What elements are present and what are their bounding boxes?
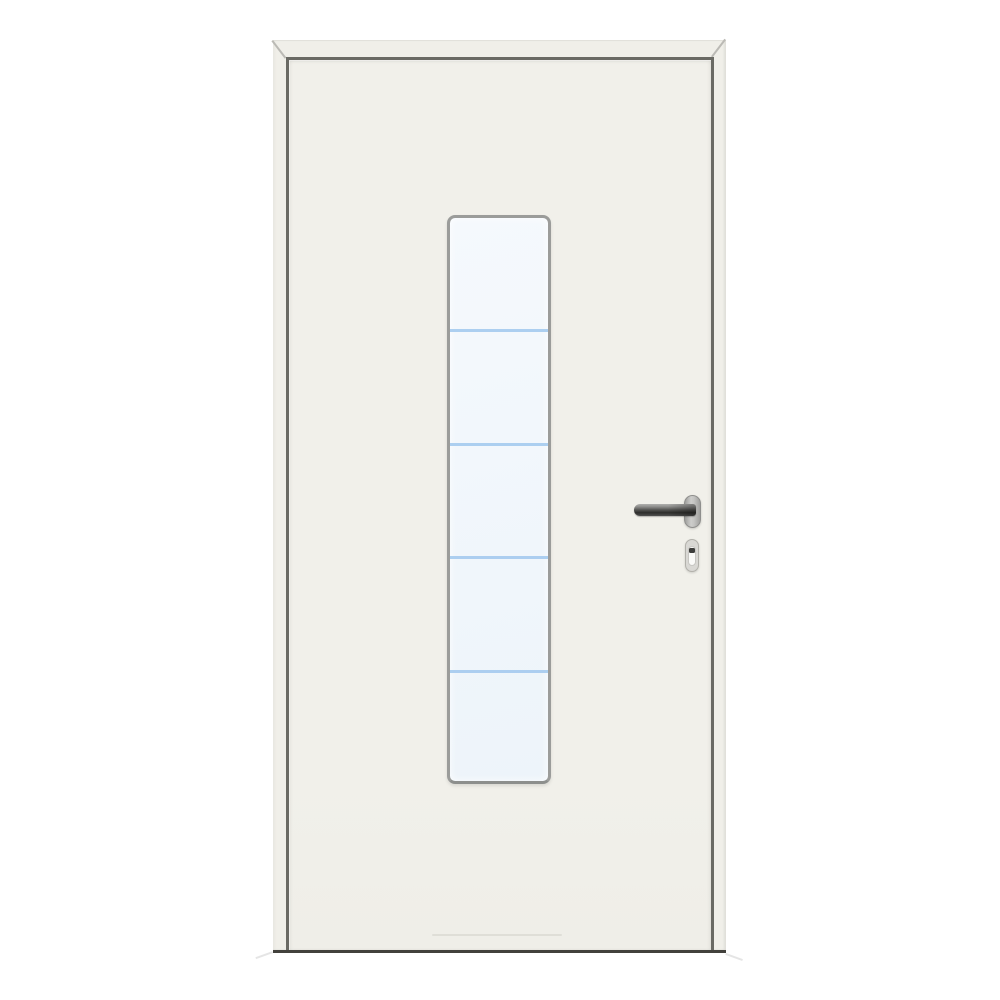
keyhole: [689, 548, 695, 553]
glass-divider-line: [450, 556, 548, 559]
glass-divider-line: [450, 443, 548, 446]
product-image-door: [0, 0, 1000, 1000]
door-bottom-seam: [432, 934, 562, 936]
corner-shadow-bottom-left: [256, 952, 273, 960]
glass-panel: [447, 215, 551, 784]
door-handle-lever: [634, 504, 696, 516]
cylinder-core: [688, 546, 696, 566]
corner-shadow-bottom-right: [725, 953, 742, 961]
cylinder-escutcheon: [685, 539, 699, 572]
glass-divider-line: [450, 329, 548, 332]
glass-divider-line: [450, 670, 548, 673]
